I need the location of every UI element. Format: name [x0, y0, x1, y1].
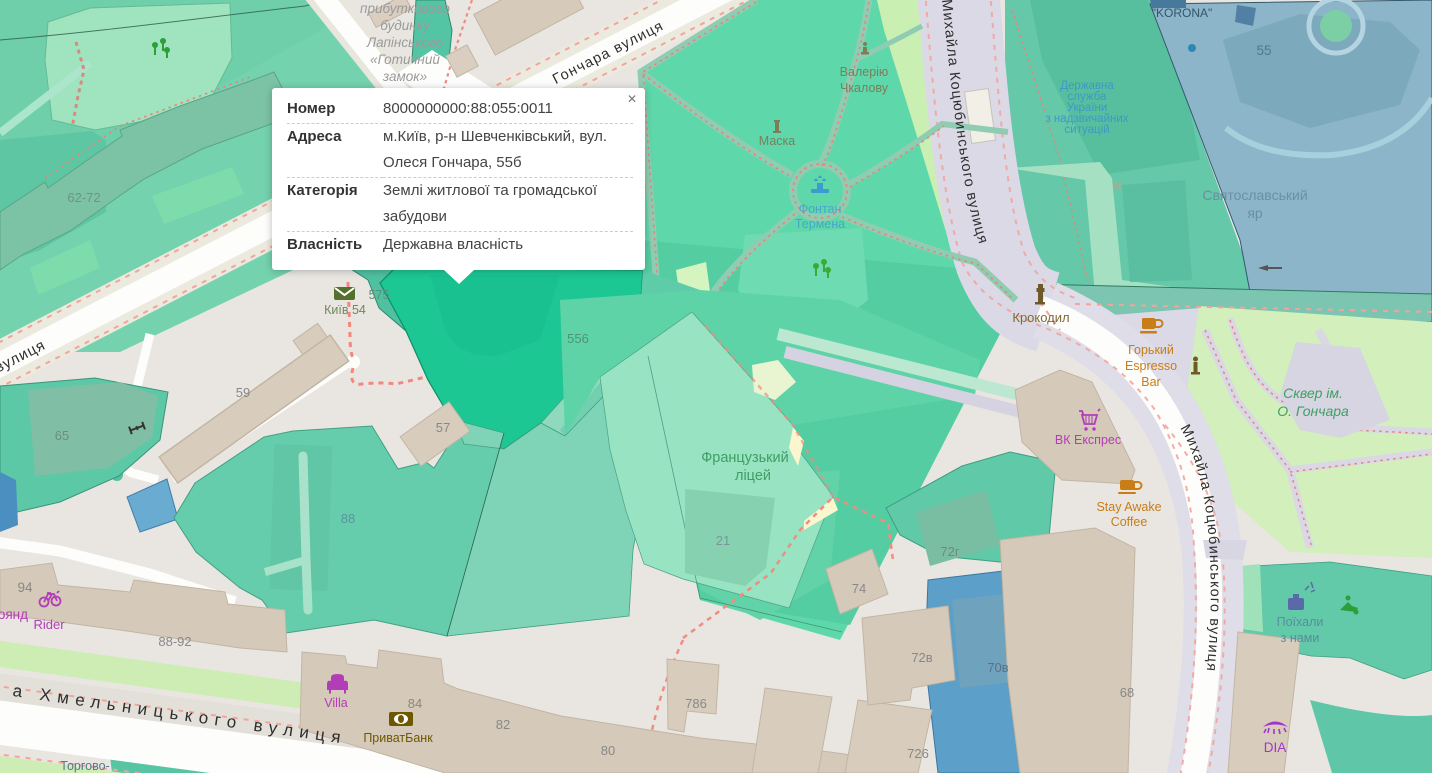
svg-text:Термена: Термена: [795, 217, 845, 231]
svg-text:"KORONA": "KORONA": [1152, 6, 1213, 20]
svg-text:Espresso: Espresso: [1125, 359, 1177, 373]
svg-text:82: 82: [496, 717, 510, 732]
svg-text:яр: яр: [1247, 205, 1263, 221]
svg-text:Stay Awake: Stay Awake: [1096, 500, 1161, 514]
svg-text:726: 726: [907, 746, 929, 761]
svg-text:Чкалову: Чкалову: [840, 81, 889, 95]
svg-text:72в: 72в: [911, 650, 932, 665]
svg-text:84: 84: [408, 696, 422, 711]
svg-text:замок»: замок»: [382, 69, 427, 84]
svg-text:ліцей: ліцей: [735, 468, 771, 484]
svg-text:ситуацій: ситуацій: [1064, 124, 1109, 136]
svg-text:О. Гончара: О. Гончара: [1277, 403, 1349, 419]
svg-text:Київ 54: Київ 54: [324, 303, 366, 317]
svg-text:Bar: Bar: [1141, 375, 1160, 389]
svg-text:72г: 72г: [940, 544, 959, 559]
svg-text:Поїхали: Поїхали: [1277, 615, 1324, 629]
svg-text:будинку: будинку: [380, 18, 431, 33]
svg-text:55: 55: [1256, 43, 1271, 58]
svg-text:Французький: Французький: [701, 450, 788, 466]
svg-text:59: 59: [236, 385, 250, 400]
svg-text:оянд: оянд: [0, 607, 28, 622]
svg-text:Фонтан: Фонтан: [799, 202, 842, 216]
svg-text:DIA: DIA: [1264, 740, 1287, 755]
svg-text:88: 88: [341, 511, 355, 526]
svg-text:Villa: Villa: [324, 696, 347, 710]
svg-text:Сквер ім.: Сквер ім.: [1283, 385, 1343, 401]
svg-text:575: 575: [369, 288, 390, 302]
svg-text:Горький: Горький: [1128, 343, 1174, 357]
svg-text:74: 74: [852, 581, 866, 596]
svg-text:ВК Експрес: ВК Експрес: [1055, 433, 1121, 447]
svg-text:Торгово-: Торгово-: [60, 759, 109, 773]
svg-text:Маска: Маска: [759, 134, 795, 148]
svg-text:80: 80: [601, 743, 615, 758]
svg-text:ПриватБанк: ПриватБанк: [363, 731, 433, 745]
svg-text:Крокодил: Крокодил: [1012, 310, 1069, 325]
svg-text:62-72: 62-72: [67, 190, 100, 205]
svg-text:94: 94: [17, 580, 33, 595]
svg-text:556: 556: [567, 331, 589, 346]
svg-text:57: 57: [436, 420, 450, 435]
svg-text:Rider: Rider: [33, 617, 65, 632]
svg-text:«Готичний: «Готичний: [370, 52, 440, 67]
svg-text:з нами: з нами: [1281, 631, 1320, 645]
svg-text:Coffee: Coffee: [1111, 515, 1148, 529]
svg-text:21: 21: [716, 533, 730, 548]
svg-text:786: 786: [685, 696, 707, 711]
svg-text:Валерію: Валерію: [840, 65, 889, 79]
svg-text:прибуткового: прибуткового: [360, 1, 450, 16]
svg-text:88-92: 88-92: [158, 634, 191, 649]
svg-text:65: 65: [55, 428, 69, 443]
svg-text:70в: 70в: [987, 660, 1008, 675]
svg-text:68: 68: [1120, 685, 1134, 700]
svg-text:Святославський: Святославський: [1202, 187, 1307, 203]
svg-text:Лапінського: Лапінського: [366, 35, 444, 50]
